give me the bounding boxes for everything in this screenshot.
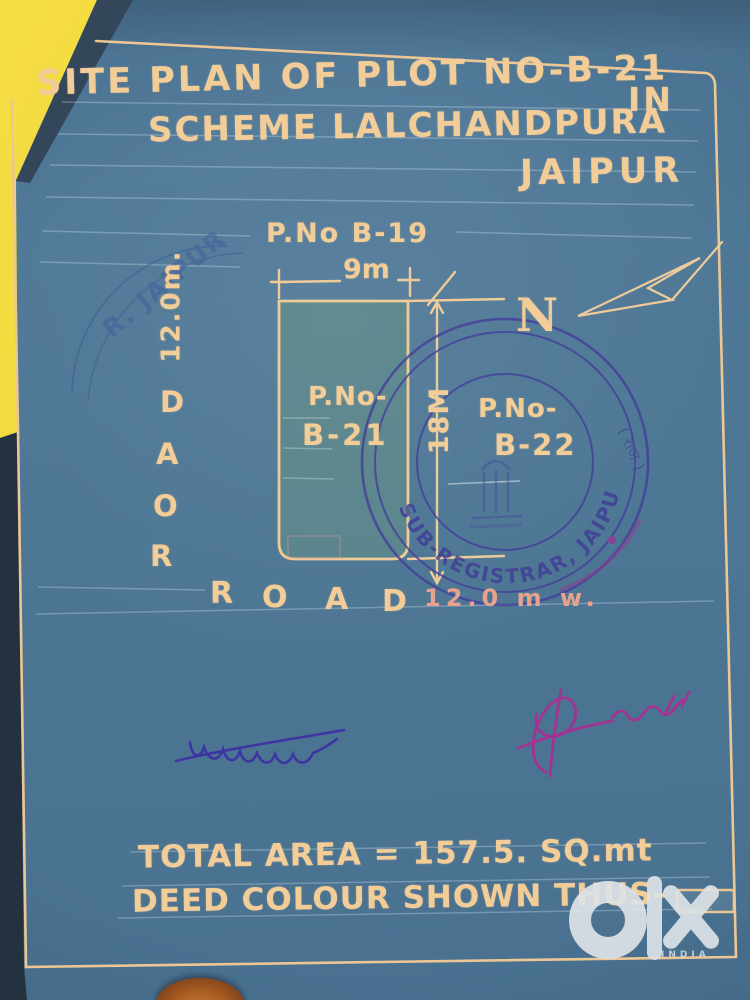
olx-bar-icon (647, 876, 662, 960)
road-bottom-letter-r: R (210, 576, 233, 611)
road-left-letter-r: R (150, 539, 172, 573)
title-line3: JAIPUR (520, 151, 685, 194)
olx-o-icon (569, 881, 647, 959)
north-arrow-icon (578, 242, 722, 316)
north-label: N (516, 288, 558, 342)
width-dimension-label: 9m (343, 254, 390, 285)
olx-india-label: INDIA (661, 950, 710, 960)
road-bottom-dim: 12.0 m w. (424, 584, 600, 612)
plot-b22-label-line1: P.No- (478, 394, 558, 424)
plot-b21-label-line1: P.No- (308, 382, 388, 412)
road-bottom-letter-a: A (325, 582, 348, 617)
road-left-letter-a: A (156, 437, 178, 471)
signature-left (176, 730, 344, 763)
adjacent-plot-b19-label: P.No B-19 (266, 218, 429, 249)
site-plan-photo: R. JAIPUR (0, 0, 750, 1000)
plot-b22-label-line2: B-22 (494, 428, 577, 462)
road-left-dim: 12.0m. (142, 250, 202, 362)
signature-right (518, 690, 689, 776)
road-bottom-letter-o: O (262, 580, 288, 615)
plot-b21-label-line2: B-21 (302, 418, 389, 452)
road-bottom-letter-d: D (382, 584, 407, 619)
ashoka-emblem-icon (470, 461, 522, 527)
road-left-letter-o: O (153, 489, 178, 523)
height-dimension-label: 18M (410, 390, 470, 450)
road-left-letter-d: D (160, 385, 184, 419)
olx-logo: INDIA (563, 870, 743, 970)
